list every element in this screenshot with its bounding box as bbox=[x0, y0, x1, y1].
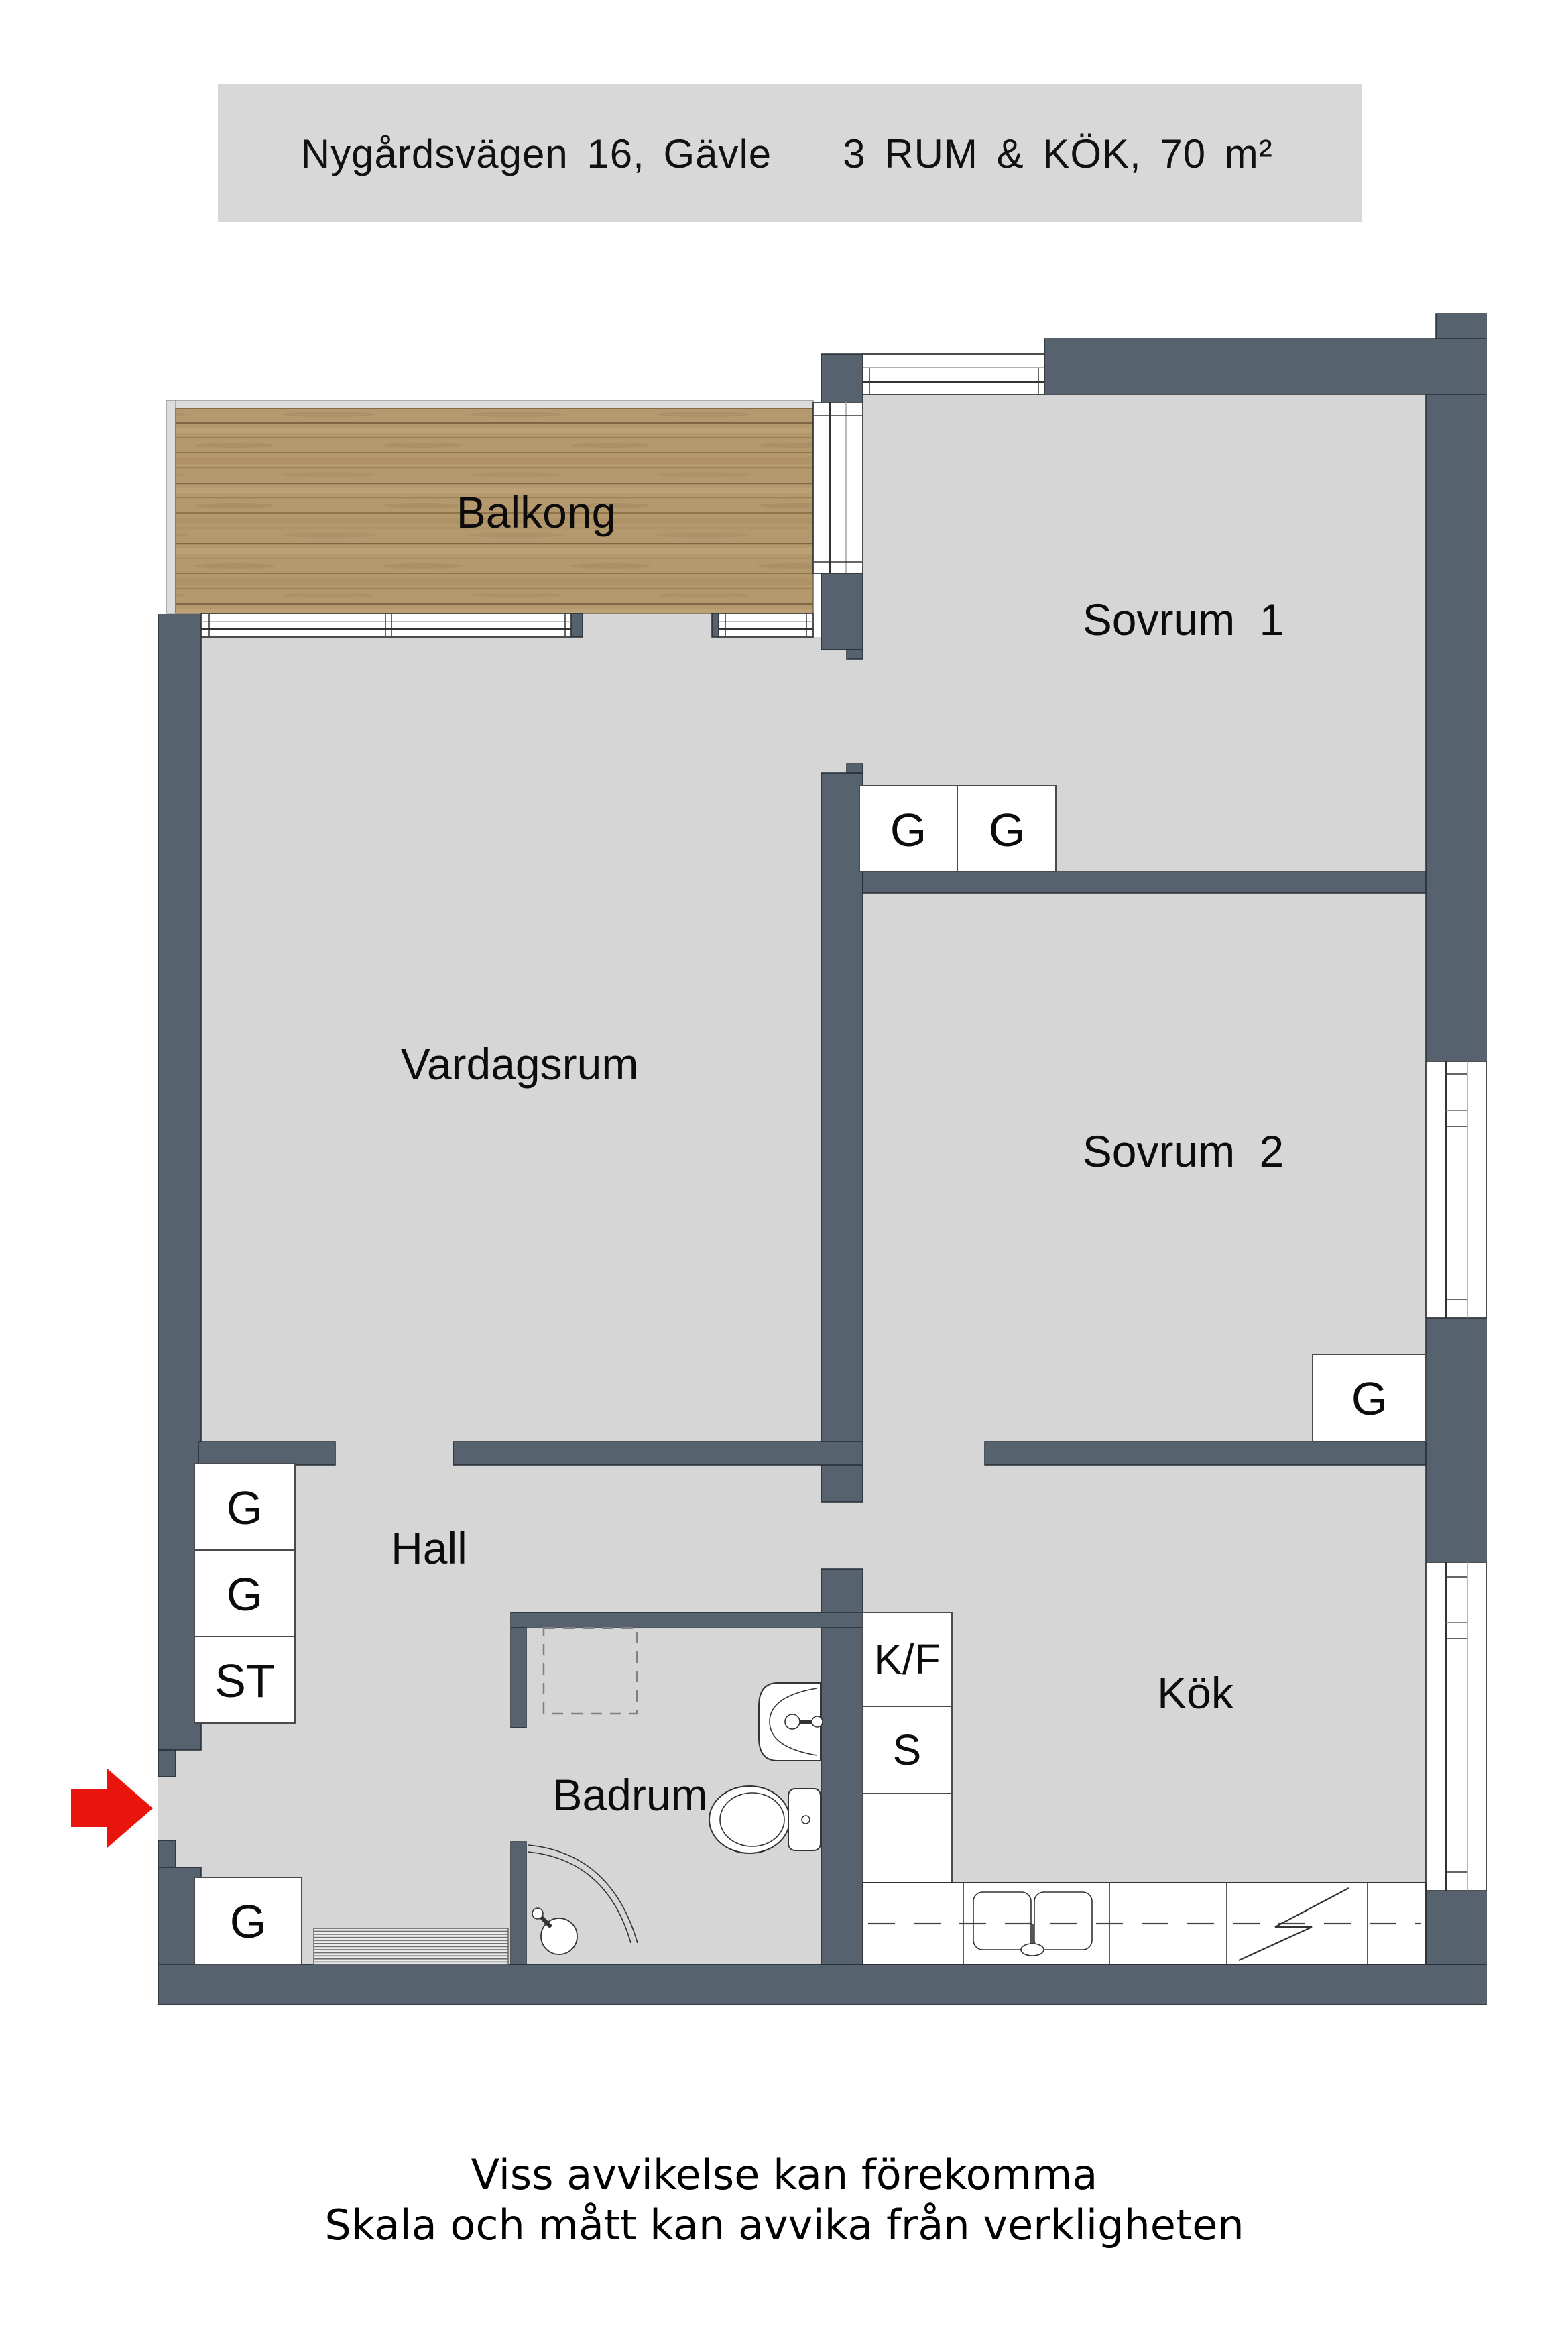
footer-line2: Skala och mått kan avvika från verklighe… bbox=[324, 2200, 1244, 2249]
title-specs: 3 RUM & KÖK, 70 m² bbox=[843, 131, 1272, 176]
appliance-pantry-label: S bbox=[893, 1726, 922, 1774]
toilet-symbol bbox=[709, 1786, 821, 1853]
wall-badrum-left-lower bbox=[511, 1842, 526, 1964]
wall-hall-main bbox=[453, 1442, 863, 1465]
closet-sovrum1-g2-label: G bbox=[989, 804, 1025, 856]
wall-balcony-pier-a bbox=[571, 613, 583, 637]
wall-center-jamb2 bbox=[847, 764, 863, 773]
window-sovrum2 bbox=[1426, 1061, 1486, 1318]
window-kok bbox=[1426, 1562, 1486, 1891]
wall-hall-left-stub bbox=[198, 1442, 335, 1465]
wall-sovrum2-kok bbox=[985, 1442, 1426, 1465]
appliance-fridge-freezer-label: K/F bbox=[873, 1635, 941, 1684]
appliance-cabinet bbox=[863, 1794, 952, 1883]
doorway-vardagsrum bbox=[335, 1442, 453, 1465]
entrance-notch-bottom bbox=[176, 1840, 201, 1867]
label-sovrum2: Sovrum 2 bbox=[1083, 1126, 1284, 1176]
label-badrum: Badrum bbox=[552, 1770, 707, 1820]
doormat-symbol bbox=[314, 1928, 508, 1964]
doorway-balkong bbox=[583, 613, 712, 637]
label-kok: Kök bbox=[1157, 1668, 1234, 1718]
doorway-sovrum2 bbox=[863, 1442, 985, 1465]
title-address: Nygårdsvägen 16, Gävle bbox=[301, 131, 772, 176]
label-sovrum1: Sovrum 1 bbox=[1083, 595, 1284, 644]
wall-right-upper bbox=[1426, 394, 1486, 1061]
wall-center-main bbox=[821, 773, 863, 1502]
closet-hall-g1-label: G bbox=[227, 1482, 263, 1534]
label-balkong: Balkong bbox=[457, 487, 617, 537]
title-bar: Nygårdsvägen 16, Gävle 3 RUM & KÖK, 70 m… bbox=[218, 84, 1362, 222]
closet-sovrum1-g1-label: G bbox=[890, 804, 926, 856]
window-balkong-sovrum1 bbox=[813, 402, 863, 573]
entrance-arrow-icon bbox=[71, 1769, 153, 1848]
wall-top-corner-step bbox=[1436, 314, 1486, 339]
entrance-notch-top bbox=[176, 1750, 201, 1777]
doorway-kok bbox=[821, 1502, 863, 1569]
wall-balcony-pier-b bbox=[712, 613, 719, 637]
balcony-rail-top bbox=[166, 400, 813, 408]
window-vardagsrum-a bbox=[201, 613, 571, 637]
balcony-rail-left bbox=[166, 400, 176, 613]
wall-right-lower bbox=[1426, 1891, 1486, 1964]
window-sovrum1 bbox=[863, 354, 1044, 394]
wall-top bbox=[1044, 339, 1486, 394]
doorway-sovrum1 bbox=[821, 650, 863, 773]
closet-sovrum2-g-label: G bbox=[1351, 1372, 1388, 1425]
wall-badrum-right bbox=[821, 1569, 863, 1964]
doorway-entrance bbox=[158, 1777, 201, 1840]
footer-disclaimer: Viss avvikelse kan förekomma Skala och m… bbox=[324, 2150, 1244, 2249]
floorplan-canvas: Nygårdsvägen 16, Gävle 3 RUM & KÖK, 70 m… bbox=[0, 0, 1568, 2352]
closet-entry-g-label: G bbox=[230, 1895, 266, 1948]
basin-symbol bbox=[759, 1683, 823, 1761]
wall-center-jamb1 bbox=[847, 650, 863, 659]
wall-right-middle bbox=[1426, 1318, 1486, 1562]
wall-sovrum-divider bbox=[863, 872, 1426, 893]
wall-bottom bbox=[158, 1964, 1486, 2005]
wall-center-top-pier bbox=[821, 354, 863, 402]
floorplan-page: Nygårdsvägen 16, Gävle 3 RUM & KÖK, 70 m… bbox=[0, 0, 1568, 2352]
wall-center-upper bbox=[821, 573, 863, 650]
footer-line1: Viss avvikelse kan förekomma bbox=[471, 2150, 1098, 2199]
wall-left-jamb-bottom bbox=[158, 1840, 176, 1867]
closet-hall-st-label: ST bbox=[215, 1655, 274, 1707]
closet-hall-g2-label: G bbox=[227, 1568, 263, 1621]
wall-badrum-left-upper bbox=[511, 1627, 526, 1728]
label-hall: Hall bbox=[391, 1523, 467, 1573]
wall-badrum-top bbox=[511, 1612, 863, 1627]
window-vardagsrum-b bbox=[719, 613, 813, 637]
wall-left-jamb-top bbox=[158, 1750, 176, 1777]
label-vardagsrum: Vardagsrum bbox=[401, 1039, 639, 1089]
